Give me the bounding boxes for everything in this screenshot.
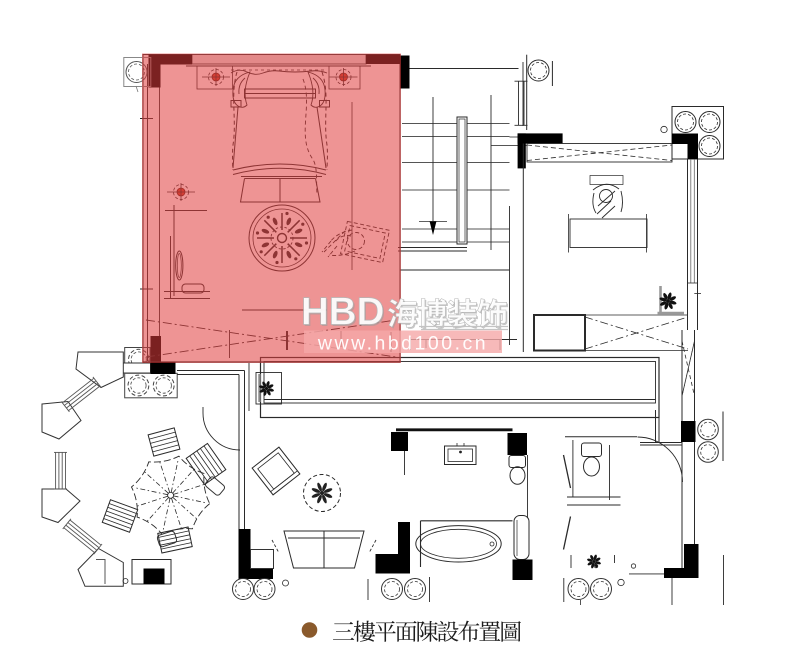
- svg-text:HBD: HBD: [301, 291, 384, 334]
- svg-text:www.hbd100.cn: www.hbd100.cn: [317, 333, 488, 355]
